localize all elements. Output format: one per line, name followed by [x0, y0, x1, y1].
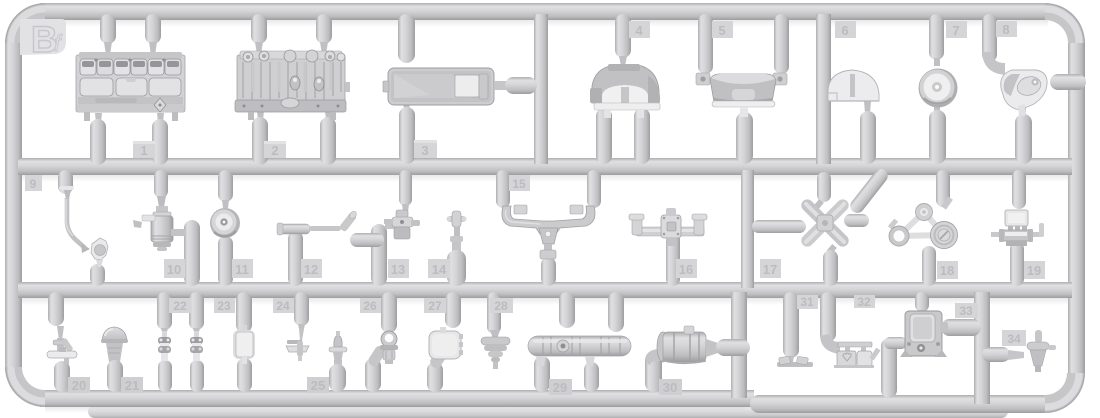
svg-text:30: 30	[663, 380, 677, 395]
svg-text:34: 34	[1007, 332, 1021, 346]
svg-text:23: 23	[217, 299, 231, 313]
svg-text:18: 18	[940, 263, 954, 278]
svg-text:13: 13	[391, 262, 405, 277]
svg-text:1: 1	[140, 143, 147, 158]
svg-text:6: 6	[841, 23, 848, 38]
svg-text:26: 26	[363, 299, 377, 313]
svg-text:8: 8	[1002, 22, 1009, 37]
svg-text:28: 28	[494, 299, 508, 313]
svg-text:21: 21	[125, 378, 139, 393]
svg-text:17: 17	[763, 262, 777, 277]
svg-text:31: 31	[800, 295, 814, 309]
svg-text:7: 7	[952, 23, 959, 38]
svg-text:19: 19	[1027, 263, 1041, 278]
svg-text:33: 33	[959, 304, 973, 318]
svg-text:4: 4	[635, 23, 643, 38]
svg-text:5: 5	[718, 23, 725, 38]
svg-text:12: 12	[304, 262, 318, 277]
svg-text:29: 29	[553, 380, 567, 395]
svg-text:2: 2	[271, 143, 278, 158]
svg-text:9: 9	[30, 177, 37, 191]
svg-text:14: 14	[432, 262, 447, 277]
svg-text:22: 22	[173, 299, 187, 313]
svg-text:15: 15	[512, 177, 526, 191]
svg-text:20: 20	[72, 378, 86, 393]
svg-text:27: 27	[428, 299, 442, 313]
svg-text:32: 32	[857, 295, 871, 309]
svg-text:11: 11	[235, 262, 249, 277]
svg-text:24: 24	[276, 299, 290, 313]
svg-text:10: 10	[167, 262, 181, 277]
svg-text:16: 16	[679, 262, 693, 277]
svg-text:25: 25	[311, 378, 325, 393]
svg-text:3: 3	[421, 143, 428, 158]
